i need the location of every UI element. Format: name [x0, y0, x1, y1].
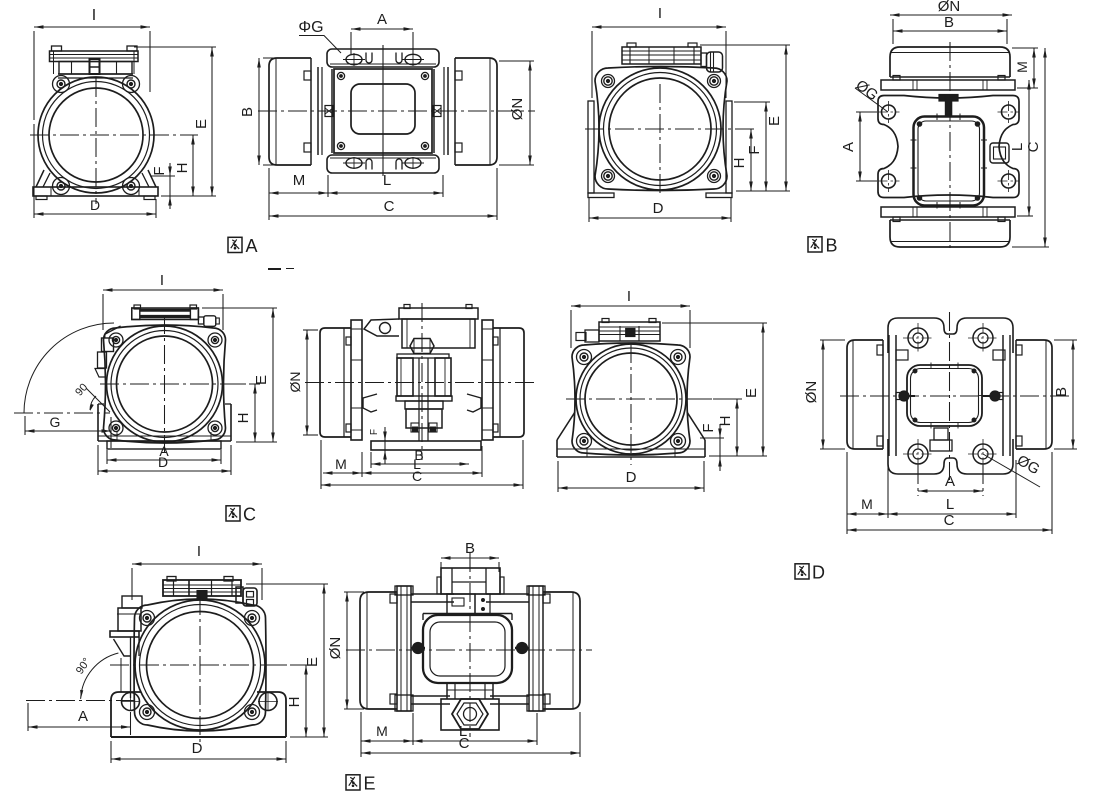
svg-text:F: F — [700, 423, 717, 432]
svg-text:D: D — [653, 200, 664, 217]
svg-text:A: A — [945, 473, 955, 490]
svg-text:M: M — [376, 723, 388, 739]
svg-text:E: E — [766, 116, 783, 126]
svg-text:C: C — [1025, 141, 1042, 152]
svg-text:D: D — [90, 197, 100, 213]
svg-text:C: C — [459, 735, 470, 752]
svg-text:E: E — [363, 774, 375, 794]
svg-text:B: B — [465, 540, 475, 557]
svg-text:C: C — [243, 505, 256, 525]
svg-text:H: H — [235, 413, 252, 424]
svg-text:D: D — [158, 454, 168, 470]
svg-text:A: A — [78, 708, 88, 725]
svg-text:L: L — [1009, 143, 1026, 151]
svg-text:ØN: ØN — [803, 381, 820, 404]
svg-text:ØN: ØN — [287, 372, 303, 393]
svg-text:ØN: ØN — [327, 637, 344, 660]
svg-text:I: I — [627, 288, 631, 305]
svg-text:ΦG: ΦG — [298, 19, 323, 36]
svg-text:D: D — [812, 563, 825, 583]
svg-text:M: M — [335, 456, 347, 472]
svg-text:ØN: ØN — [509, 98, 526, 121]
svg-text:I: I — [92, 7, 96, 24]
svg-text:M: M — [861, 496, 873, 512]
svg-text:B: B — [1053, 387, 1070, 397]
svg-text:L: L — [946, 496, 954, 513]
svg-text:I: I — [658, 5, 662, 22]
svg-text:C: C — [944, 512, 955, 529]
svg-text:G: G — [50, 414, 61, 430]
svg-text:L: L — [383, 172, 391, 189]
svg-text:F: F — [151, 166, 168, 175]
svg-text:H: H — [731, 158, 748, 169]
svg-text:ØN: ØN — [938, 0, 961, 15]
svg-text:F: F — [369, 429, 380, 435]
svg-text:C: C — [412, 468, 422, 484]
svg-text:A: A — [377, 11, 387, 28]
svg-text:E: E — [253, 375, 270, 385]
svg-text:B: B — [825, 236, 837, 256]
svg-text:E: E — [743, 388, 760, 398]
svg-text:F: F — [746, 145, 763, 154]
svg-text:I: I — [160, 272, 164, 289]
svg-text:E: E — [193, 119, 210, 129]
svg-text:C: C — [384, 198, 395, 215]
svg-text:A: A — [840, 142, 857, 152]
svg-text:A: A — [245, 236, 257, 256]
svg-text:B: B — [239, 107, 256, 117]
svg-text:I: I — [197, 543, 201, 560]
svg-text:B: B — [944, 14, 954, 31]
svg-text:M: M — [293, 172, 306, 189]
svg-text:D: D — [192, 740, 203, 757]
svg-text:H: H — [174, 163, 191, 174]
svg-text:M: M — [1014, 61, 1030, 73]
svg-text:D: D — [626, 469, 637, 486]
svg-text:H: H — [286, 697, 303, 708]
